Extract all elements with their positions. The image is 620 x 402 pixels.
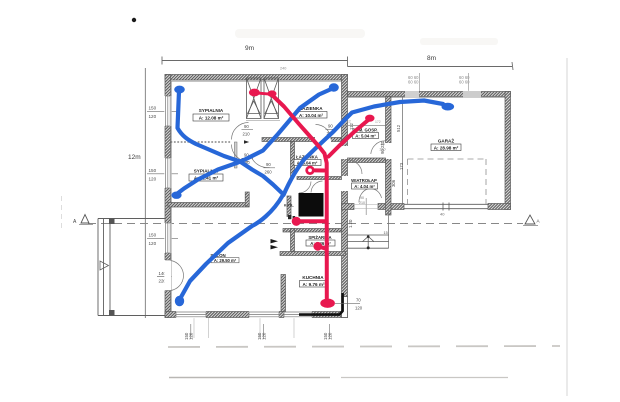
svg-text:120: 120 bbox=[149, 114, 157, 119]
svg-text:90: 90 bbox=[360, 196, 364, 200]
svg-text:173: 173 bbox=[399, 162, 404, 170]
svg-text:210: 210 bbox=[380, 148, 386, 152]
svg-text:210: 210 bbox=[359, 201, 365, 205]
svg-text:A: 28.98 m²: A: 28.98 m² bbox=[434, 145, 459, 150]
svg-text:240: 240 bbox=[280, 67, 286, 71]
svg-text:40: 40 bbox=[440, 212, 445, 217]
svg-text:306: 306 bbox=[391, 179, 396, 187]
svg-text:A: 29.50 m²: A: 29.50 m² bbox=[214, 258, 237, 263]
svg-text:KUCHNIA: KUCHNIA bbox=[302, 275, 324, 280]
svg-text:120: 120 bbox=[355, 306, 363, 311]
svg-text:12: 12 bbox=[347, 120, 351, 124]
svg-text:120: 120 bbox=[262, 332, 267, 340]
svg-text:150: 150 bbox=[149, 168, 157, 173]
svg-text:A: 10.04 m²: A: 10.04 m² bbox=[299, 113, 324, 118]
svg-text:GARAŻ: GARAŻ bbox=[438, 138, 455, 144]
svg-text:150: 150 bbox=[149, 233, 157, 238]
svg-text:SYPIALNIA: SYPIALNIA bbox=[199, 108, 224, 113]
svg-text:A: 12.08 m²: A: 12.08 m² bbox=[199, 116, 224, 121]
svg-text:KOTŁ.: KOTŁ. bbox=[284, 204, 294, 208]
svg-text:90: 90 bbox=[244, 124, 249, 129]
svg-text:A: 4.04 m²: A: 4.04 m² bbox=[354, 184, 375, 189]
svg-text:8m: 8m bbox=[427, 55, 436, 62]
svg-text:90: 90 bbox=[266, 162, 271, 167]
svg-text:A: 5.04 m²: A: 5.04 m² bbox=[355, 134, 376, 139]
svg-text:150: 150 bbox=[149, 106, 157, 111]
svg-text:40: 40 bbox=[381, 143, 385, 147]
svg-text:WIATROŁAP: WIATROŁAP bbox=[351, 178, 377, 183]
svg-text:1.20: 1.20 bbox=[348, 219, 353, 228]
svg-text:120: 120 bbox=[149, 176, 157, 181]
svg-text:90: 90 bbox=[328, 124, 333, 129]
svg-text:120: 120 bbox=[328, 332, 333, 340]
svg-text:120: 120 bbox=[149, 241, 157, 246]
svg-text:172: 172 bbox=[375, 120, 381, 124]
svg-text:A: 9.76 m²: A: 9.76 m² bbox=[303, 282, 325, 287]
svg-text:210: 210 bbox=[243, 131, 251, 136]
svg-text:60 60: 60 60 bbox=[408, 80, 419, 85]
svg-text:512: 512 bbox=[396, 124, 401, 132]
svg-text:15: 15 bbox=[384, 231, 388, 235]
svg-text:9m: 9m bbox=[245, 45, 254, 52]
svg-text:120: 120 bbox=[189, 332, 194, 340]
svg-text:70: 70 bbox=[356, 298, 361, 303]
svg-text:260: 260 bbox=[265, 170, 273, 175]
svg-text:12m: 12m bbox=[128, 154, 141, 161]
